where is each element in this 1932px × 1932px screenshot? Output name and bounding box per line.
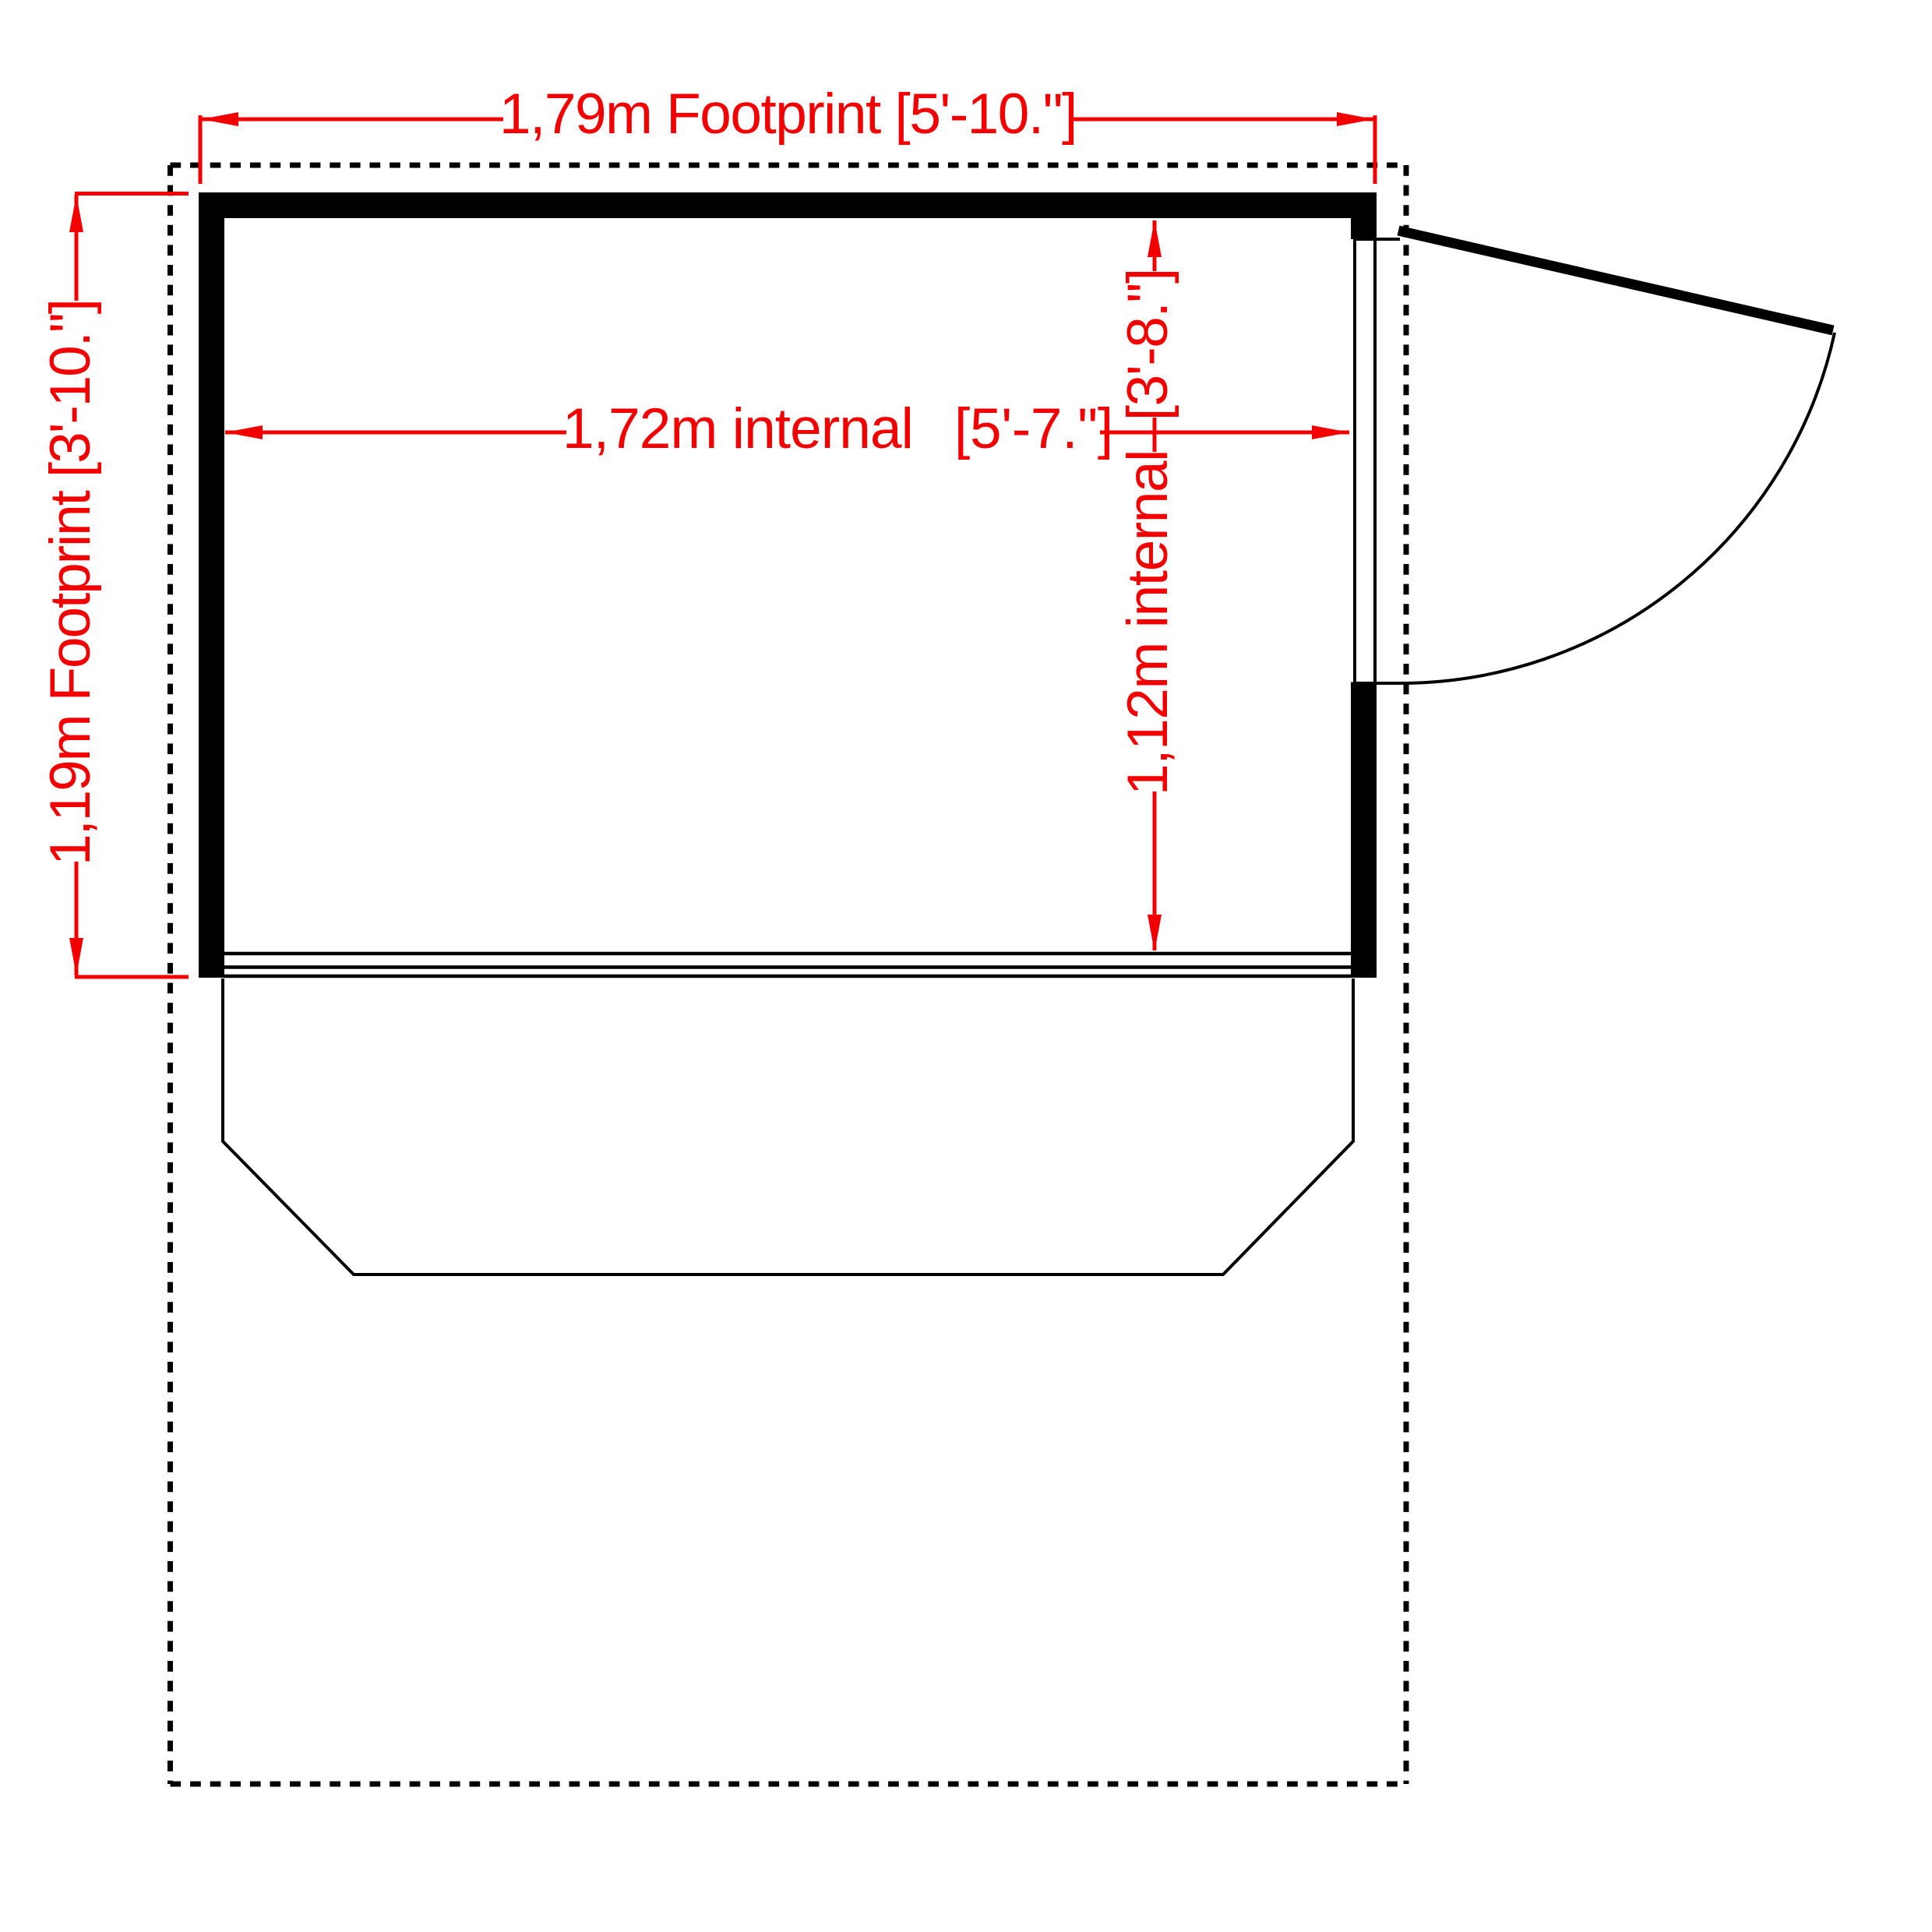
svg-text:1,72m internal: 1,72m internal bbox=[562, 397, 913, 460]
svg-text:1,12m internal [3'-8."]: 1,12m internal [3'-8."] bbox=[1116, 269, 1179, 795]
svg-text:1,19m Footprint [3'-10."]: 1,19m Footprint [3'-10."] bbox=[39, 300, 102, 866]
svg-text:[5'-7."]: [5'-7."] bbox=[954, 397, 1113, 460]
svg-text:1,79m Footprint [5'-10."]: 1,79m Footprint [5'-10."] bbox=[499, 83, 1077, 146]
